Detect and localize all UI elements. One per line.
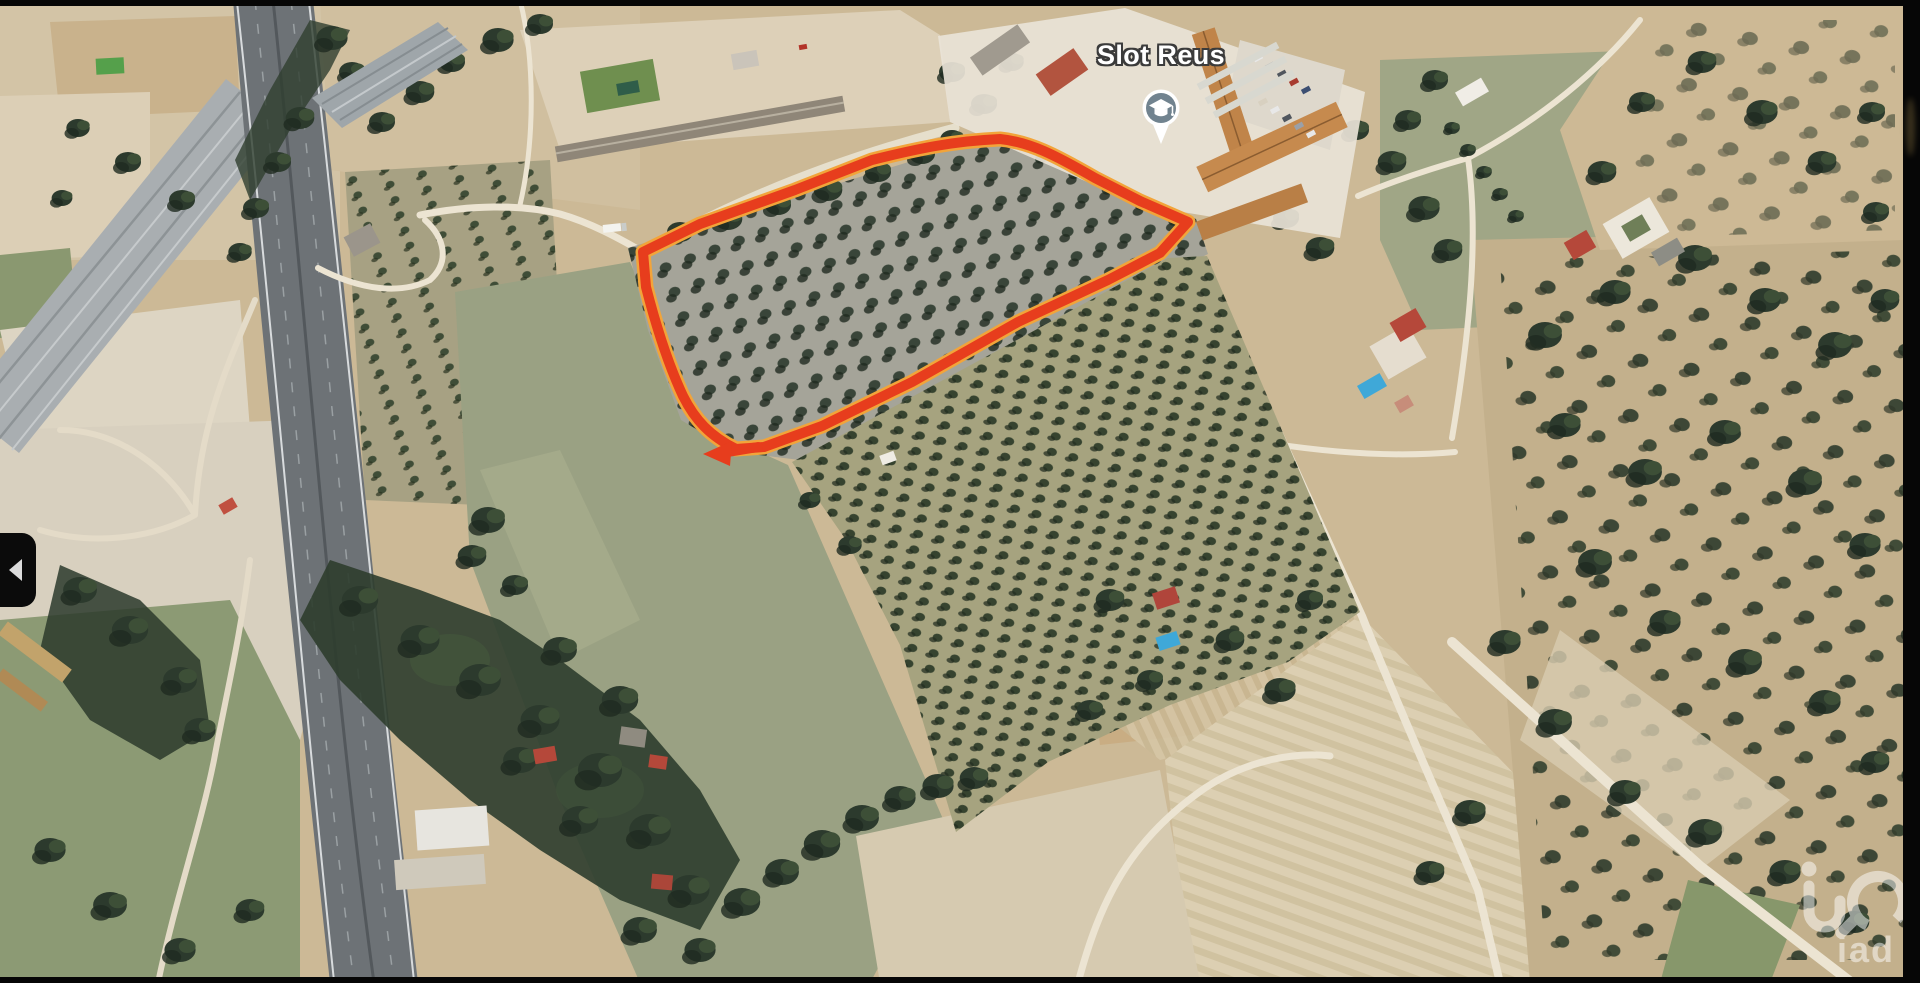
letterbox-glare xyxy=(1906,98,1915,156)
letterbox-top xyxy=(0,0,1920,6)
satellite-map-view[interactable]: Slot Reus iad xyxy=(0,0,1920,983)
school-pin-icon[interactable] xyxy=(1139,88,1183,148)
chevron-left-icon xyxy=(9,559,22,581)
place-label[interactable]: Slot Reus xyxy=(1097,40,1225,71)
collapse-panel-button[interactable] xyxy=(0,533,36,607)
satellite-imagery xyxy=(0,0,1920,983)
letterbox-bottom xyxy=(0,977,1920,983)
